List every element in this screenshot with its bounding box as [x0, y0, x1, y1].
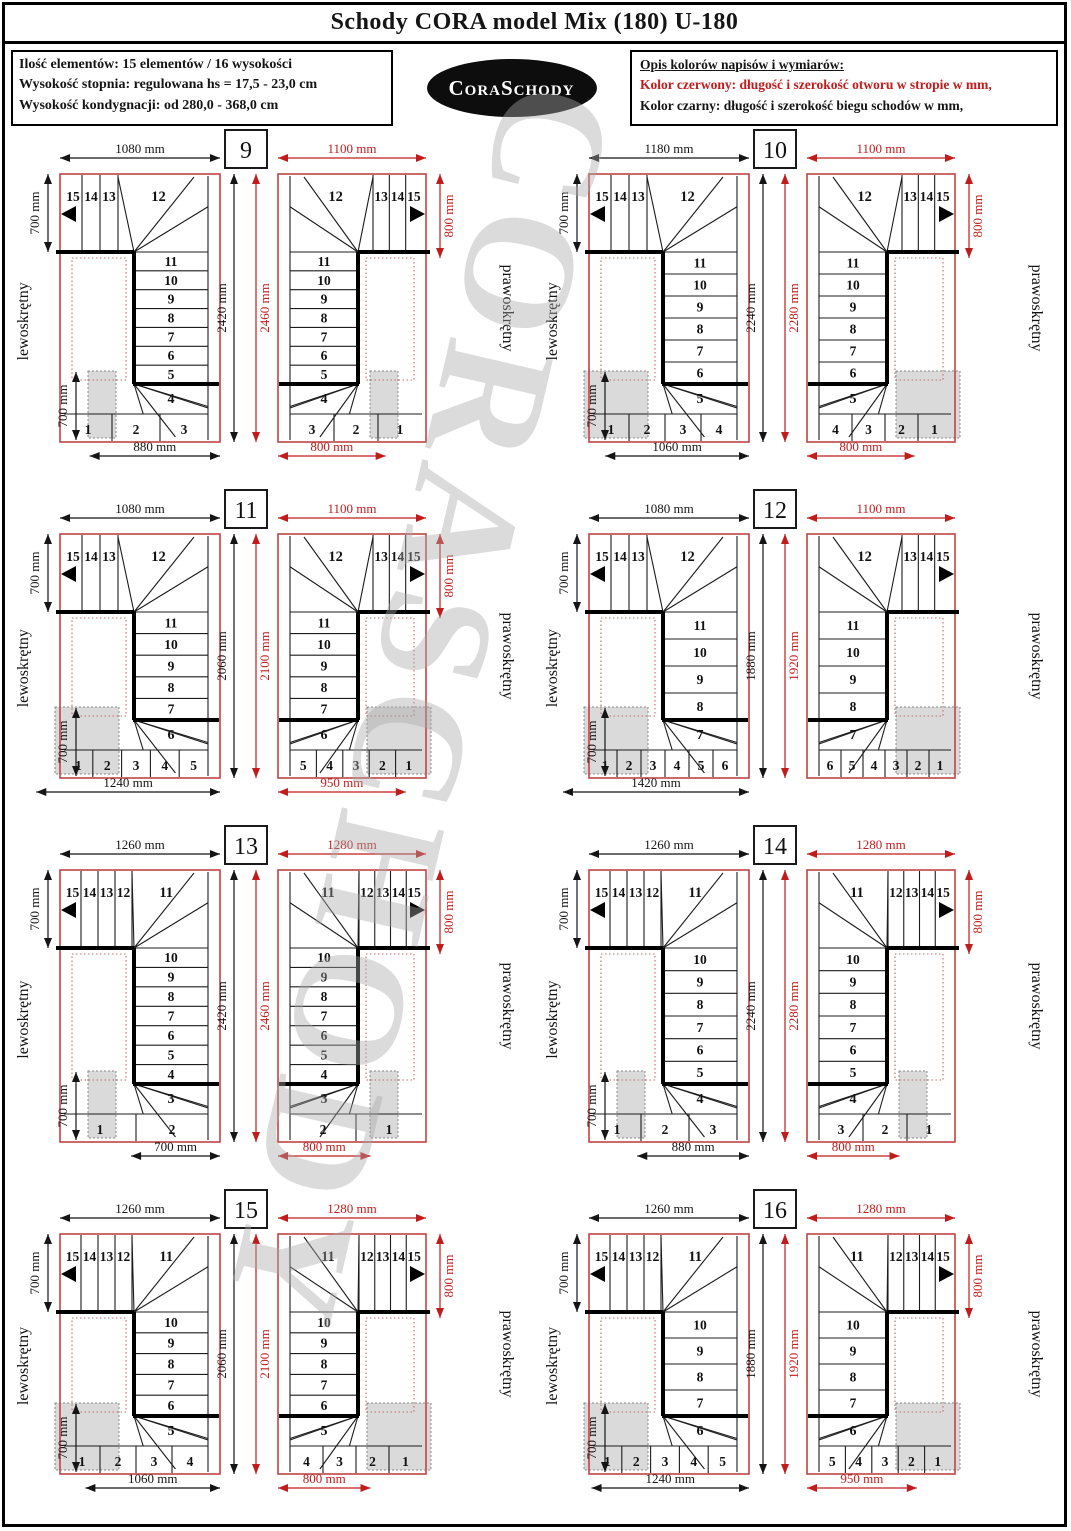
svg-text:4: 4	[697, 1092, 704, 1107]
svg-text:8: 8	[697, 997, 704, 1012]
svg-text:11: 11	[850, 1249, 864, 1265]
svg-text:14: 14	[391, 189, 405, 204]
stair-diagrams-9: lewoskrętnyprawoskrętny15141312111098765…	[14, 128, 526, 488]
svg-text:12: 12	[360, 885, 374, 900]
svg-text:12: 12	[646, 1249, 660, 1264]
svg-text:3: 3	[838, 1122, 845, 1137]
variant-number-box: 10	[754, 130, 796, 168]
svg-text:11: 11	[689, 1249, 703, 1265]
svg-text:700 mm: 700 mm	[27, 1252, 42, 1295]
svg-text:10: 10	[847, 645, 861, 660]
svg-text:14: 14	[614, 549, 628, 564]
svg-text:14: 14	[921, 885, 935, 900]
svg-text:5: 5	[167, 1047, 174, 1062]
svg-text:13: 13	[234, 834, 258, 860]
svg-text:13: 13	[629, 1249, 643, 1264]
svg-text:11: 11	[850, 885, 864, 901]
svg-text:1080 mm: 1080 mm	[645, 501, 694, 516]
svg-text:12: 12	[858, 549, 873, 565]
svg-text:7: 7	[320, 329, 327, 344]
svg-text:3: 3	[893, 758, 900, 773]
svg-text:1: 1	[84, 422, 91, 437]
svg-text:1: 1	[935, 1454, 942, 1469]
svg-text:14: 14	[920, 549, 934, 564]
variant-pair-9: lewoskrętnyprawoskrętny15141312111098765…	[14, 128, 526, 488]
svg-text:8: 8	[850, 997, 857, 1012]
svg-text:700 mm: 700 mm	[584, 1085, 599, 1128]
svg-text:10: 10	[164, 637, 178, 652]
svg-text:9: 9	[697, 300, 704, 315]
svg-text:700 mm: 700 mm	[584, 721, 599, 764]
svg-text:4: 4	[326, 758, 333, 773]
svg-text:800 mm: 800 mm	[840, 439, 883, 454]
svg-text:7: 7	[320, 702, 327, 717]
svg-text:15: 15	[595, 1249, 609, 1264]
svg-text:prawoskrętny: prawoskrętny	[1028, 264, 1045, 351]
svg-text:3: 3	[132, 758, 139, 773]
svg-text:2: 2	[369, 1454, 376, 1469]
svg-text:2: 2	[132, 422, 139, 437]
svg-text:3: 3	[150, 1454, 157, 1469]
svg-text:14: 14	[391, 549, 405, 564]
svg-text:11: 11	[159, 885, 173, 901]
svg-text:800 mm: 800 mm	[441, 891, 456, 934]
svg-text:10: 10	[694, 1318, 708, 1333]
svg-text:800 mm: 800 mm	[441, 1255, 456, 1298]
svg-text:2: 2	[352, 422, 359, 437]
svg-text:14: 14	[83, 1249, 97, 1264]
svg-text:1880 mm: 1880 mm	[743, 631, 758, 680]
svg-text:6: 6	[697, 1043, 704, 1058]
svg-text:5: 5	[850, 392, 857, 407]
svg-text:15: 15	[407, 549, 421, 564]
svg-text:prawoskrętny: prawoskrętny	[1028, 962, 1045, 1049]
svg-text:4: 4	[167, 392, 174, 407]
legend-box: Opis kolorów napisów i wymiarów: Kolor c…	[630, 50, 1058, 126]
svg-text:1: 1	[931, 422, 938, 437]
svg-text:7: 7	[850, 344, 857, 359]
svg-text:2420 mm: 2420 mm	[214, 981, 229, 1030]
svg-text:13: 13	[102, 189, 116, 204]
svg-text:12: 12	[151, 549, 166, 565]
svg-text:1880 mm: 1880 mm	[743, 1329, 758, 1378]
svg-text:15: 15	[936, 189, 950, 204]
svg-text:15: 15	[66, 549, 80, 564]
svg-text:13: 13	[102, 549, 116, 564]
svg-text:11: 11	[694, 618, 707, 633]
svg-text:1: 1	[608, 422, 615, 437]
svg-text:1920 mm: 1920 mm	[786, 631, 801, 680]
header-row: Ilość elementów: 15 elementów / 16 wysok…	[11, 50, 1058, 126]
svg-text:15: 15	[66, 885, 80, 900]
svg-text:1240 mm: 1240 mm	[646, 1471, 695, 1486]
svg-text:14: 14	[84, 189, 98, 204]
svg-text:9: 9	[167, 1336, 174, 1351]
svg-text:7: 7	[167, 1377, 174, 1392]
svg-text:6: 6	[320, 1398, 327, 1413]
svg-text:7: 7	[320, 1009, 327, 1024]
svg-text:10: 10	[164, 273, 178, 288]
variant-number-box: 14	[754, 826, 796, 864]
svg-text:5: 5	[167, 367, 174, 382]
svg-text:1: 1	[937, 758, 944, 773]
svg-text:13: 13	[904, 189, 918, 204]
svg-text:3: 3	[680, 422, 687, 437]
svg-text:800 mm: 800 mm	[310, 439, 353, 454]
svg-text:700 mm: 700 mm	[556, 192, 571, 235]
svg-text:lewoskrętny: lewoskrętny	[15, 1327, 32, 1405]
variant-number-box: 16	[754, 1190, 796, 1228]
svg-text:8: 8	[850, 699, 857, 714]
svg-text:3: 3	[662, 1454, 669, 1469]
svg-text:lewoskrętny: lewoskrętny	[15, 980, 32, 1058]
svg-text:800 mm: 800 mm	[970, 195, 985, 238]
svg-text:3: 3	[882, 1454, 889, 1469]
svg-text:lewoskrętny: lewoskrętny	[544, 282, 561, 360]
legend-red-line: Kolor czerwony: długość i szerokość otwo…	[640, 75, 1048, 95]
svg-text:12: 12	[328, 549, 343, 565]
svg-text:13: 13	[374, 189, 388, 204]
svg-text:2: 2	[626, 758, 633, 773]
svg-text:5: 5	[697, 1065, 704, 1080]
svg-text:9: 9	[167, 292, 174, 307]
svg-text:2: 2	[168, 1122, 175, 1137]
svg-text:15: 15	[66, 189, 80, 204]
svg-text:9: 9	[167, 970, 174, 985]
svg-text:6: 6	[320, 728, 327, 743]
svg-text:14: 14	[763, 834, 787, 860]
svg-text:15: 15	[596, 189, 610, 204]
svg-text:6: 6	[850, 1043, 857, 1058]
svg-text:10: 10	[694, 645, 708, 660]
svg-text:15: 15	[936, 549, 950, 564]
svg-text:13: 13	[632, 549, 646, 564]
variant-pair-12: lewoskrętnyprawoskrętny15141312111098712…	[543, 488, 1055, 824]
svg-text:1080 mm: 1080 mm	[115, 141, 164, 156]
svg-text:4: 4	[691, 1454, 698, 1469]
svg-text:8: 8	[697, 1370, 704, 1385]
svg-text:16: 16	[763, 1198, 787, 1224]
svg-text:700 mm: 700 mm	[55, 385, 70, 428]
svg-text:7: 7	[697, 1020, 704, 1035]
svg-text:12: 12	[360, 1249, 374, 1264]
svg-text:15: 15	[937, 1249, 951, 1264]
svg-text:12: 12	[117, 885, 131, 900]
svg-text:7: 7	[697, 1396, 704, 1411]
svg-text:14: 14	[391, 1249, 405, 1264]
variant-pair-16: lewoskrętnyprawoskrętny15141312111098761…	[543, 1188, 1055, 1520]
svg-text:8: 8	[167, 989, 174, 1004]
svg-text:5: 5	[697, 392, 704, 407]
svg-text:14: 14	[83, 885, 97, 900]
svg-text:6: 6	[827, 758, 834, 773]
variant-pair-13: lewoskrętnyprawoskrętny15141312111098765…	[14, 824, 526, 1188]
svg-text:9: 9	[697, 672, 704, 687]
svg-text:13: 13	[904, 549, 918, 564]
svg-text:11: 11	[159, 1249, 173, 1265]
svg-text:9: 9	[320, 659, 327, 674]
svg-text:15: 15	[66, 1249, 80, 1264]
svg-text:800 mm: 800 mm	[832, 1139, 875, 1154]
svg-text:14: 14	[614, 189, 628, 204]
svg-text:2100 mm: 2100 mm	[257, 1329, 272, 1378]
svg-text:4: 4	[832, 422, 839, 437]
svg-text:3: 3	[650, 758, 657, 773]
svg-text:1100 mm: 1100 mm	[857, 141, 906, 156]
svg-text:11: 11	[317, 254, 330, 269]
svg-text:5: 5	[320, 367, 327, 382]
svg-text:11: 11	[321, 885, 335, 901]
svg-text:3: 3	[167, 1092, 174, 1107]
svg-text:12: 12	[151, 189, 166, 205]
svg-text:1260 mm: 1260 mm	[645, 1201, 694, 1216]
svg-text:1: 1	[614, 1122, 621, 1137]
svg-text:700 mm: 700 mm	[27, 192, 42, 235]
svg-text:700 mm: 700 mm	[154, 1139, 197, 1154]
stair-diagrams-16: lewoskrętnyprawoskrętny15141312111098761…	[543, 1188, 1055, 1520]
svg-text:4: 4	[674, 758, 681, 773]
svg-text:700 mm: 700 mm	[55, 1085, 70, 1128]
svg-text:lewoskrętny: lewoskrętny	[544, 1327, 561, 1405]
svg-text:4: 4	[161, 758, 168, 773]
svg-text:3: 3	[180, 422, 187, 437]
variant-number-box: 11	[225, 490, 267, 528]
stair-diagrams-14: lewoskrętnyprawoskrętny15141312111098765…	[543, 824, 1055, 1188]
svg-text:4: 4	[855, 1454, 862, 1469]
variant-number-box: 15	[225, 1190, 267, 1228]
svg-text:2100 mm: 2100 mm	[257, 631, 272, 680]
svg-text:2280 mm: 2280 mm	[786, 981, 801, 1030]
svg-text:8: 8	[320, 311, 327, 326]
svg-text:700 mm: 700 mm	[584, 385, 599, 428]
svg-text:2: 2	[915, 758, 922, 773]
variant-pair-11: lewoskrętnyprawoskrętny15141312111098761…	[14, 488, 526, 824]
svg-text:9: 9	[240, 138, 252, 164]
svg-text:5: 5	[829, 1454, 836, 1469]
svg-text:6: 6	[697, 366, 704, 381]
svg-text:8: 8	[320, 1357, 327, 1372]
stair-diagrams-10: lewoskrętnyprawoskrętny15141312111098765…	[543, 128, 1055, 488]
brand-logo: CoraSchody	[427, 59, 597, 117]
svg-text:12: 12	[889, 1249, 903, 1264]
variant-pair-14: lewoskrętnyprawoskrętny15141312111098765…	[543, 824, 1055, 1188]
svg-text:9: 9	[850, 300, 857, 315]
svg-text:3: 3	[336, 1454, 343, 1469]
svg-text:2: 2	[633, 1454, 640, 1469]
svg-text:10: 10	[763, 138, 787, 164]
svg-text:10: 10	[164, 950, 178, 965]
sheet: Schody CORA model Mix (180) U-180 Ilość …	[2, 2, 1067, 1527]
svg-text:1100 mm: 1100 mm	[327, 501, 376, 516]
svg-text:1060 mm: 1060 mm	[128, 1471, 177, 1486]
svg-text:prawoskrętny: prawoskrętny	[1028, 1310, 1045, 1397]
stair-diagrams-13: lewoskrętnyprawoskrętny15141312111098765…	[14, 824, 526, 1188]
svg-text:6: 6	[167, 348, 174, 363]
svg-text:1100 mm: 1100 mm	[857, 501, 906, 516]
svg-text:3: 3	[320, 1092, 327, 1107]
svg-text:1: 1	[405, 758, 412, 773]
svg-text:8: 8	[320, 680, 327, 695]
info-line-elements: Ilość elementów: 15 elementów / 16 wysok…	[19, 55, 385, 75]
svg-text:5: 5	[167, 1424, 174, 1439]
svg-text:700 mm: 700 mm	[27, 552, 42, 595]
svg-text:1240 mm: 1240 mm	[103, 775, 152, 790]
svg-text:880 mm: 880 mm	[672, 1139, 715, 1154]
svg-text:6: 6	[850, 366, 857, 381]
svg-text:800 mm: 800 mm	[970, 891, 985, 934]
svg-text:8: 8	[850, 1370, 857, 1385]
svg-text:prawoskrętny: prawoskrętny	[499, 962, 516, 1049]
svg-text:4: 4	[871, 758, 878, 773]
svg-text:8: 8	[697, 322, 704, 337]
svg-text:5: 5	[849, 758, 856, 773]
svg-text:700 mm: 700 mm	[556, 1252, 571, 1295]
svg-text:6: 6	[697, 1424, 704, 1439]
svg-text:800 mm: 800 mm	[441, 555, 456, 598]
svg-text:12: 12	[681, 549, 696, 565]
svg-text:5: 5	[320, 1424, 327, 1439]
svg-text:14: 14	[920, 189, 934, 204]
svg-text:4: 4	[716, 422, 723, 437]
variant-number-box: 13	[225, 826, 267, 864]
svg-text:11: 11	[164, 615, 177, 630]
svg-text:12: 12	[681, 189, 696, 205]
svg-text:7: 7	[167, 1009, 174, 1024]
svg-text:1280 mm: 1280 mm	[327, 837, 376, 852]
svg-text:10: 10	[847, 1318, 861, 1333]
svg-text:1260 mm: 1260 mm	[115, 1201, 164, 1216]
info-line-step-height: Wysokość stopnia: regulowana hs = 17,5 -…	[19, 75, 385, 95]
svg-text:4: 4	[303, 1454, 310, 1469]
svg-text:12: 12	[858, 189, 873, 205]
svg-text:2: 2	[882, 1122, 889, 1137]
svg-text:2: 2	[908, 1454, 915, 1469]
svg-text:7: 7	[697, 344, 704, 359]
svg-text:10: 10	[317, 273, 331, 288]
svg-text:9: 9	[850, 975, 857, 990]
svg-text:15: 15	[937, 885, 951, 900]
svg-text:2: 2	[114, 1454, 121, 1469]
svg-text:7: 7	[850, 1396, 857, 1411]
svg-text:950 mm: 950 mm	[320, 775, 363, 790]
svg-text:14: 14	[612, 1249, 626, 1264]
svg-text:11: 11	[847, 618, 860, 633]
svg-text:4: 4	[167, 1067, 174, 1082]
svg-text:700 mm: 700 mm	[55, 1417, 70, 1460]
svg-text:1: 1	[402, 1454, 409, 1469]
logo-wrap: CoraSchody	[393, 50, 630, 126]
stair-diagrams-11: lewoskrętnyprawoskrętny15141312111098761…	[14, 488, 526, 824]
svg-text:prawoskrętny: prawoskrętny	[499, 1310, 516, 1397]
svg-text:6: 6	[167, 1398, 174, 1413]
svg-text:4: 4	[320, 392, 327, 407]
svg-text:2: 2	[662, 1122, 669, 1137]
svg-text:8: 8	[167, 311, 174, 326]
svg-text:1280 mm: 1280 mm	[857, 837, 906, 852]
svg-text:9: 9	[320, 292, 327, 307]
diagram-grid: lewoskrętnyprawoskrętny15141312111098765…	[5, 128, 1064, 1520]
svg-text:13: 13	[374, 549, 388, 564]
svg-text:8: 8	[697, 699, 704, 714]
svg-text:13: 13	[376, 885, 390, 900]
svg-text:1: 1	[385, 1122, 392, 1137]
svg-text:1100 mm: 1100 mm	[327, 141, 376, 156]
svg-text:8: 8	[850, 322, 857, 337]
svg-text:2420 mm: 2420 mm	[214, 283, 229, 332]
svg-text:3: 3	[710, 1122, 717, 1137]
svg-text:6: 6	[167, 1028, 174, 1043]
svg-text:800 mm: 800 mm	[303, 1471, 346, 1486]
svg-text:2: 2	[644, 422, 651, 437]
svg-text:9: 9	[167, 659, 174, 674]
svg-text:11: 11	[164, 254, 177, 269]
svg-text:6: 6	[722, 758, 729, 773]
svg-text:14: 14	[84, 549, 98, 564]
svg-text:4: 4	[320, 1067, 327, 1082]
svg-text:7: 7	[167, 702, 174, 717]
svg-text:2280 mm: 2280 mm	[786, 283, 801, 332]
svg-text:8: 8	[320, 989, 327, 1004]
svg-text:2460 mm: 2460 mm	[257, 981, 272, 1030]
svg-text:7: 7	[697, 728, 704, 743]
svg-text:lewoskrętny: lewoskrętny	[544, 629, 561, 707]
variant-number-box: 12	[754, 490, 796, 528]
svg-text:14: 14	[921, 1249, 935, 1264]
svg-text:10: 10	[694, 278, 708, 293]
svg-text:13: 13	[100, 885, 114, 900]
svg-text:2: 2	[898, 422, 905, 437]
svg-text:1: 1	[96, 1122, 103, 1137]
info-box: Ilość elementów: 15 elementów / 16 wysok…	[11, 50, 393, 126]
variant-number-box: 9	[225, 130, 267, 168]
svg-text:3: 3	[865, 422, 872, 437]
svg-text:2: 2	[104, 758, 111, 773]
svg-text:12: 12	[117, 1249, 131, 1264]
svg-text:1: 1	[396, 422, 403, 437]
svg-text:9: 9	[850, 672, 857, 687]
info-line-storey-height: Wysokość kondygnacji: od 280,0 - 368,0 c…	[19, 96, 385, 116]
svg-text:2060 mm: 2060 mm	[214, 631, 229, 680]
svg-text:14: 14	[391, 885, 405, 900]
svg-text:1260 mm: 1260 mm	[645, 837, 694, 852]
svg-text:1420 mm: 1420 mm	[632, 775, 681, 790]
svg-text:15: 15	[234, 1198, 258, 1224]
svg-text:9: 9	[320, 1336, 327, 1351]
svg-text:15: 15	[595, 885, 609, 900]
svg-text:5: 5	[320, 1047, 327, 1062]
svg-text:800 mm: 800 mm	[970, 1255, 985, 1298]
svg-text:5: 5	[300, 758, 307, 773]
svg-text:12: 12	[328, 189, 343, 205]
svg-text:1920 mm: 1920 mm	[786, 1329, 801, 1378]
svg-text:2: 2	[319, 1122, 326, 1137]
svg-text:5: 5	[850, 1065, 857, 1080]
svg-text:2460 mm: 2460 mm	[257, 283, 272, 332]
svg-text:prawoskrętny: prawoskrętny	[499, 264, 516, 351]
svg-text:12: 12	[646, 885, 660, 900]
svg-text:2060 mm: 2060 mm	[214, 1329, 229, 1378]
svg-text:1: 1	[926, 1122, 933, 1137]
svg-text:10: 10	[847, 952, 861, 967]
variant-pair-10: lewoskrętnyprawoskrętny15141312111098765…	[543, 128, 1055, 488]
svg-text:7: 7	[167, 329, 174, 344]
svg-text:9: 9	[850, 1344, 857, 1359]
svg-text:15: 15	[407, 885, 421, 900]
svg-text:1060 mm: 1060 mm	[653, 439, 702, 454]
svg-text:1280 mm: 1280 mm	[327, 1201, 376, 1216]
svg-text:9: 9	[320, 970, 327, 985]
svg-text:700 mm: 700 mm	[55, 721, 70, 764]
